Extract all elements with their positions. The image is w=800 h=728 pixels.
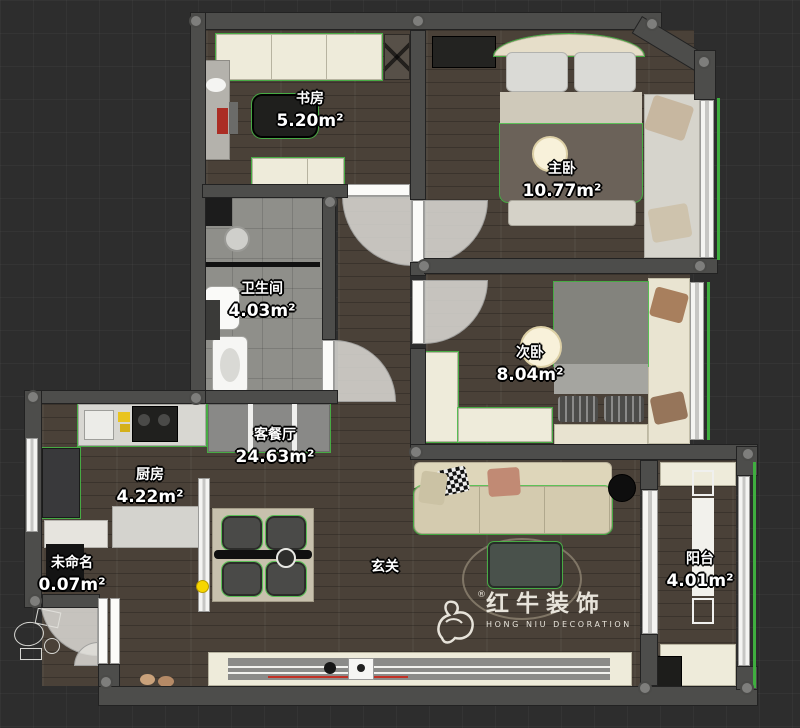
wall-entry-stub [42, 594, 100, 608]
wall-study-right [410, 30, 426, 200]
pillar-cap [189, 14, 203, 28]
second-bed-duvet[interactable] [554, 282, 648, 366]
wall-bathroom-bottom [202, 390, 338, 404]
cabinet-line-1 [228, 666, 610, 668]
red-accent-line [268, 676, 408, 678]
wall-master-second-divider [424, 258, 718, 274]
master-dresser[interactable] [432, 36, 496, 68]
study-wardrobe[interactable] [216, 34, 382, 80]
vanity-mirror [206, 78, 226, 92]
pillar-cap [645, 17, 659, 31]
pillar-cap [26, 390, 40, 404]
entry-door-leaf-2[interactable] [110, 598, 120, 664]
yellow-utensil-1 [118, 412, 130, 422]
dining-chair-1[interactable] [222, 516, 262, 550]
master-pillow-left [506, 52, 568, 92]
master-bed-bench [508, 200, 636, 226]
cabinet-divider-1 [248, 404, 253, 452]
flue-shaft [384, 34, 410, 80]
pillar-cap [323, 195, 337, 209]
shoes-1 [140, 674, 155, 685]
second-bed-sheet [554, 364, 648, 394]
basin-fixture [206, 300, 220, 340]
master-bay-window [700, 100, 714, 258]
balcony-window [738, 476, 750, 666]
outside-sketch-rect-2 [20, 648, 42, 660]
drying-rack-top [692, 470, 714, 496]
toilet-bowl [220, 348, 240, 382]
green-line-balcony [753, 462, 756, 688]
desk-chair[interactable] [252, 94, 318, 138]
wall-bathroom-right [322, 198, 336, 340]
wall-left-upper [190, 12, 206, 400]
kitchen-window [26, 438, 38, 532]
vase [324, 662, 336, 674]
red-decor-item [217, 108, 228, 134]
second-door-leaf[interactable] [412, 280, 424, 344]
master-bed-duvet[interactable] [500, 124, 642, 202]
wall-living-balcony-top [640, 460, 658, 490]
second-ceiling-light [520, 326, 562, 368]
master-door-leaf[interactable] [412, 200, 424, 262]
pillar-cap [411, 14, 425, 28]
dining-chair-2[interactable] [266, 516, 306, 550]
shower-mat [202, 196, 232, 226]
yellow-marker-dot [196, 580, 209, 593]
pillar-cap [99, 675, 113, 689]
pillar-cap [417, 259, 431, 273]
pillar-cap [189, 391, 203, 405]
kitchen-sink [84, 410, 114, 440]
tv-speaker [357, 664, 365, 672]
unnamed-duct [46, 544, 84, 592]
study-door-leaf[interactable] [344, 184, 410, 196]
hongniu-bull-logo: ® [432, 592, 478, 650]
watermark-text: 红牛装饰 HONG NIU DECORATION [486, 592, 632, 629]
master-pillow-right [574, 52, 636, 92]
bay-cushion-2 [647, 203, 692, 243]
registered-mark: ® [477, 590, 486, 600]
brand-subtitle: HONG NIU DECORATION [486, 620, 632, 629]
drying-rack[interactable] [692, 498, 714, 596]
wall-living-balcony-bottom [640, 634, 658, 686]
dining-table[interactable] [214, 550, 312, 559]
yellow-utensil-2 [120, 424, 130, 432]
storage-cabinet-row[interactable] [208, 404, 330, 452]
brand-name: 红牛装饰 [486, 592, 632, 617]
entry-door-leaf-1[interactable] [98, 598, 108, 664]
second-pillow-left [558, 396, 598, 422]
pillar-cap [28, 594, 42, 608]
side-table[interactable] [608, 474, 636, 502]
wall-hall-lower [410, 348, 426, 452]
master-ceiling-light [532, 136, 568, 172]
green-line-second-bay [707, 282, 710, 440]
floor-plan-canvas: 书房 5.20m² 主卧 10.77m² 卫生间 4.03m² 次卧 8.04m… [0, 0, 800, 728]
pillar-cap [693, 259, 707, 273]
watermark: ® 红牛装饰 HONG NIU DECORATION [432, 592, 632, 650]
gray-decor-item [229, 102, 238, 134]
kitchen-low-cabinet-right [112, 506, 202, 548]
balcony-sliding-door[interactable] [642, 490, 658, 634]
dining-chair-3[interactable] [222, 562, 262, 596]
second-wardrobe-bottom[interactable] [458, 408, 552, 442]
pillar-cap [740, 681, 754, 695]
burner-right [158, 414, 170, 426]
wall-top [190, 12, 662, 30]
pillar-cap [409, 445, 423, 459]
burner-left [138, 414, 150, 426]
salmon-pillow [487, 467, 521, 497]
second-bay-window [690, 282, 704, 440]
cabinet-line-2 [228, 672, 610, 674]
second-pillow-right [604, 396, 644, 422]
master-bed-sheet [500, 92, 642, 126]
green-line-master-bay [717, 98, 720, 260]
shower-partition [204, 262, 320, 267]
shower-head[interactable] [224, 226, 250, 252]
drying-rack-bottom [692, 598, 714, 624]
coffee-table[interactable] [488, 542, 562, 588]
pillar-cap [697, 55, 711, 69]
cabinet-divider-2 [292, 404, 297, 452]
pillar-cap [741, 447, 755, 461]
teapot [276, 548, 296, 568]
pillar-cap [638, 681, 652, 695]
wall-second-living-divider [410, 444, 758, 460]
fridge[interactable] [42, 448, 80, 518]
wall-kitchen-top [24, 390, 206, 404]
beige-throw [418, 470, 448, 505]
wall-bottom [98, 686, 758, 706]
